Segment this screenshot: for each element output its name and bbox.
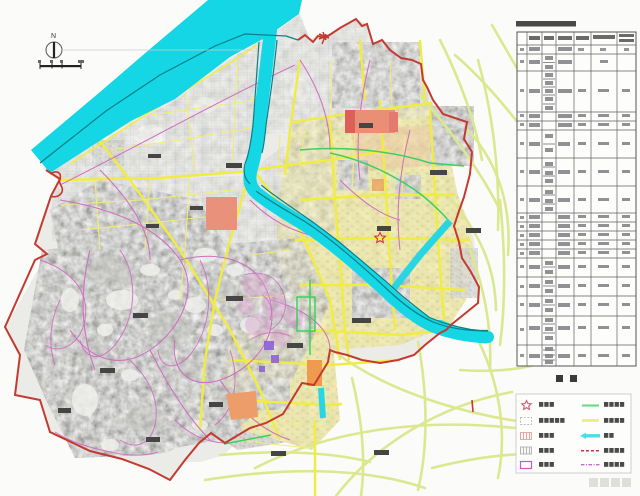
svg-text:N: N	[51, 33, 56, 40]
